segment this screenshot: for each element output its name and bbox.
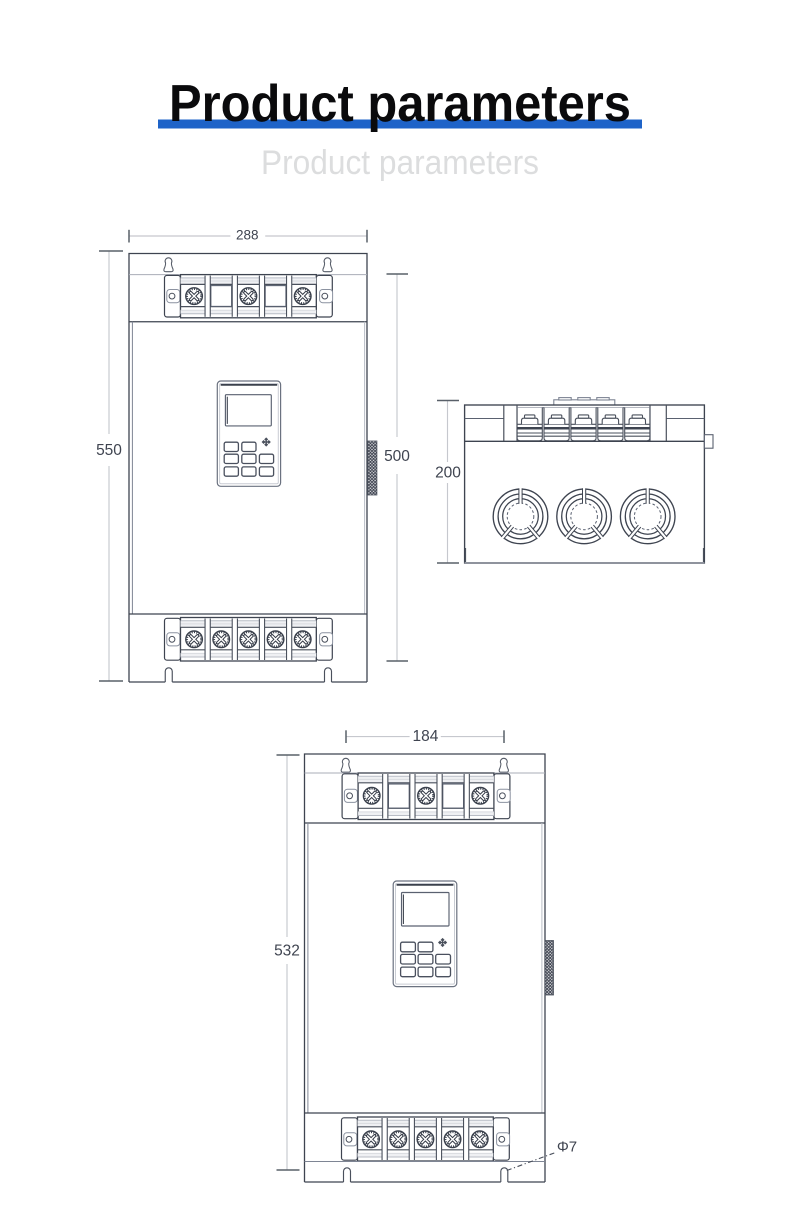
svg-text:Φ7: Φ7 (557, 1139, 577, 1156)
svg-text:184: 184 (412, 728, 438, 745)
svg-text:288: 288 (236, 228, 259, 243)
svg-text:Product parameters: Product parameters (169, 75, 631, 133)
svg-text:532: 532 (274, 942, 300, 959)
svg-text:550: 550 (96, 442, 122, 459)
svg-text:200: 200 (435, 465, 461, 482)
svg-text:Product parameters: Product parameters (261, 144, 539, 182)
svg-text:500: 500 (384, 448, 410, 465)
